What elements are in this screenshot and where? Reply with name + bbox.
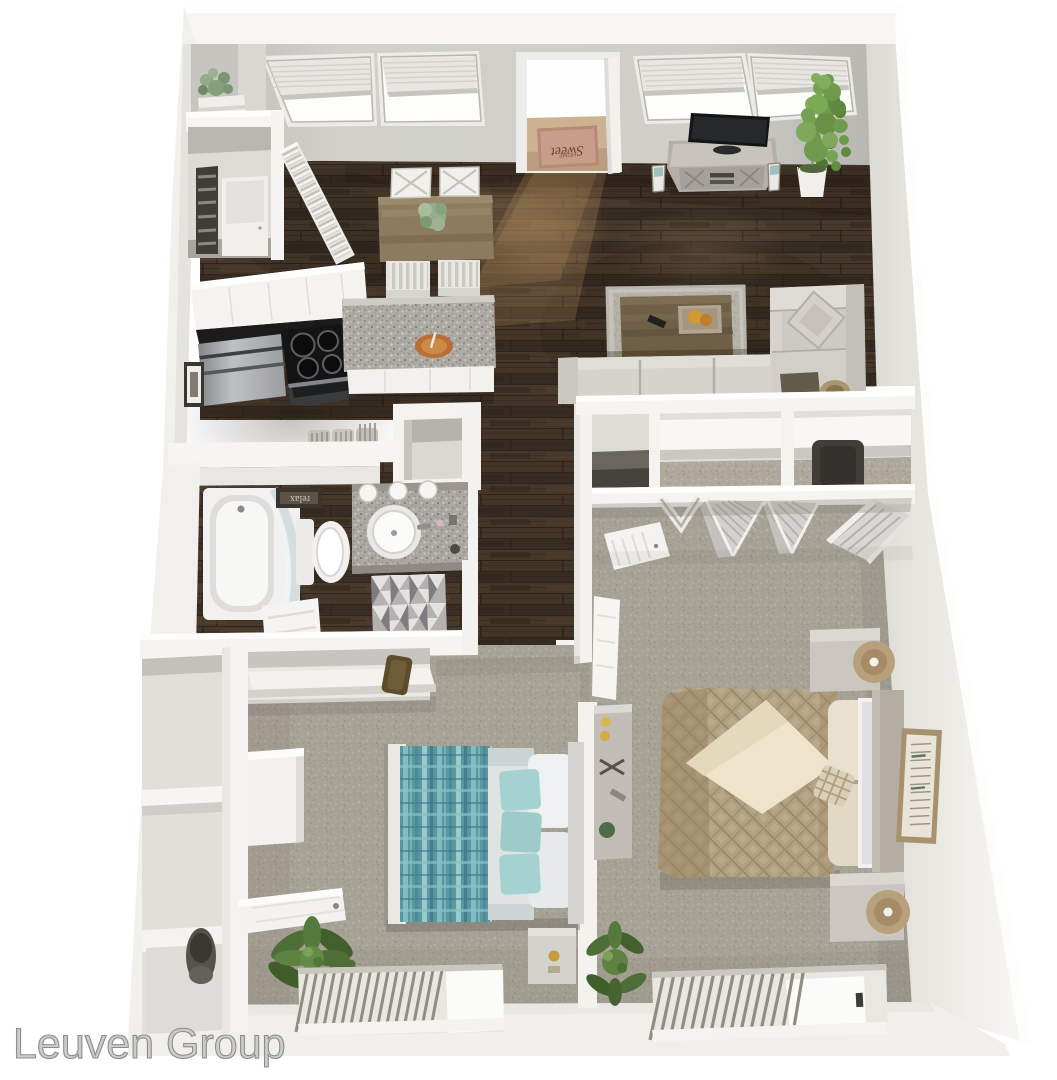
svg-text:HOME: HOME <box>558 151 576 158</box>
svg-text:relax: relax <box>290 493 310 504</box>
svg-text:Leuven Group: Leuven Group <box>13 1020 286 1068</box>
